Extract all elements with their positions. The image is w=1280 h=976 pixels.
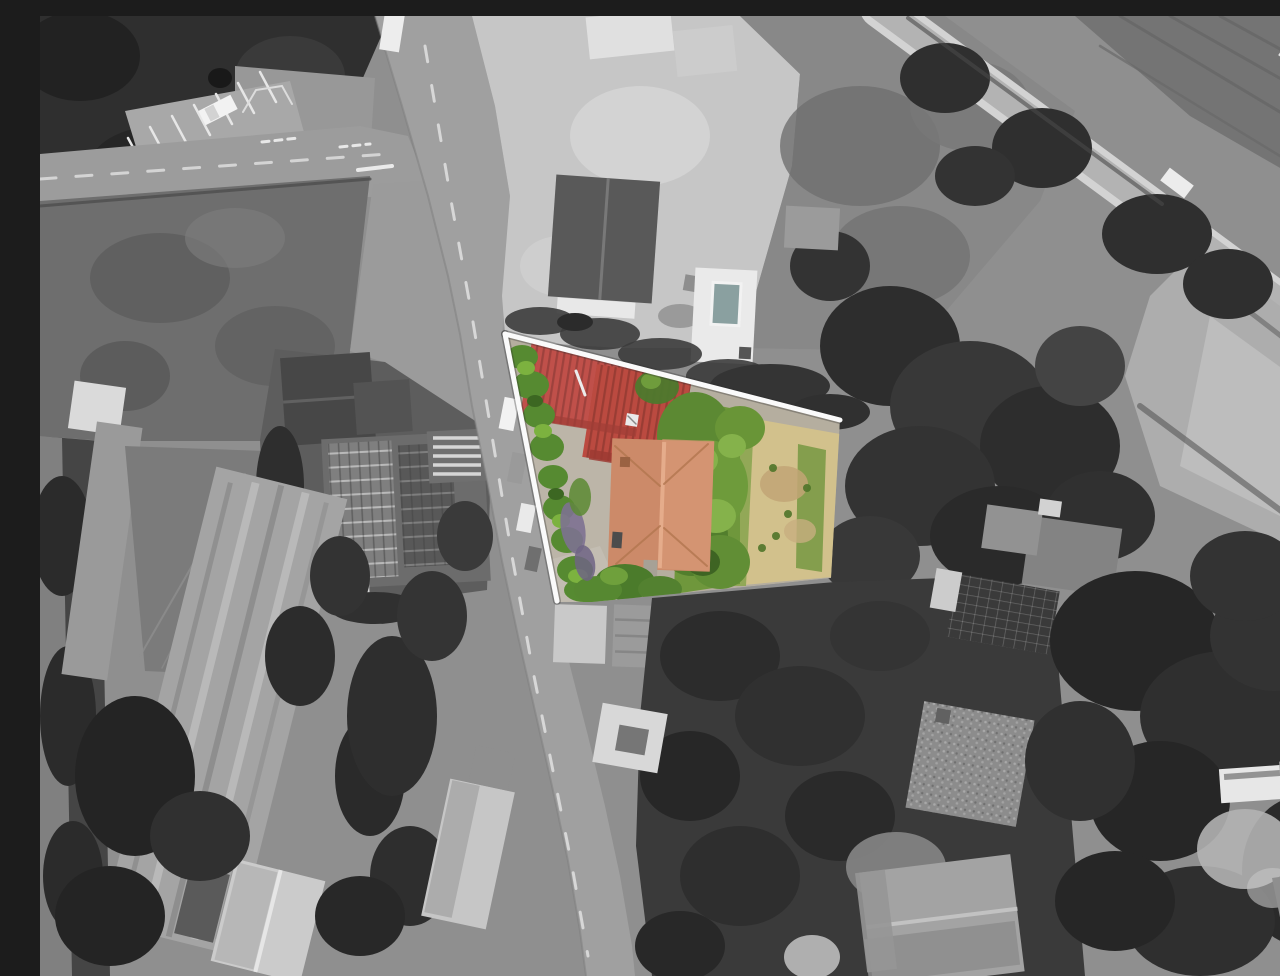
yard-light-patch — [570, 86, 710, 186]
rubble-strip — [557, 313, 593, 331]
tree-green-highlight — [718, 434, 746, 458]
dirt-patch — [760, 466, 808, 502]
forest-right — [1025, 701, 1135, 821]
tree-canopy — [1183, 249, 1273, 319]
tree-canopy — [347, 636, 437, 796]
rooftop-unit — [739, 347, 752, 360]
tree-canopy — [265, 606, 335, 706]
tree-canopy — [830, 601, 930, 671]
tree-canopy — [55, 866, 165, 966]
grass-strip — [796, 444, 826, 572]
hedge-shadow — [527, 395, 543, 407]
yard-object — [611, 532, 622, 549]
roof-slat — [433, 463, 481, 467]
forest-right — [1055, 851, 1175, 951]
field-shrub — [772, 532, 780, 540]
white-building-south — [553, 604, 607, 664]
building-extension — [353, 379, 412, 435]
hedge-highlight — [517, 361, 535, 375]
field-shrub — [803, 484, 811, 492]
bush — [208, 68, 232, 88]
hedge-highlight — [534, 424, 552, 438]
tree-canopy — [437, 501, 493, 571]
orange-roof-face — [658, 439, 715, 571]
aerial-photo-canvas — [40, 16, 1280, 976]
tree-canopy — [150, 791, 250, 881]
house-roof — [981, 504, 1043, 555]
white-van — [1219, 765, 1280, 803]
tree-canopy — [310, 536, 370, 616]
dirt-patch — [784, 519, 816, 543]
tree-canopy — [900, 43, 990, 113]
field-mottle — [185, 208, 285, 268]
roof-slat — [433, 472, 481, 476]
outbuilding — [468, 745, 515, 790]
hedge-highlight — [600, 567, 628, 585]
hedge-shadow — [548, 488, 564, 500]
tree-canopy — [735, 666, 865, 766]
tree-canopy — [397, 571, 467, 661]
swimming-pool — [711, 282, 741, 325]
courtyard-dark — [615, 725, 649, 756]
tree-canopy — [315, 876, 405, 956]
shed-roof — [784, 206, 840, 251]
white-roof — [673, 25, 737, 77]
roof-speckle — [905, 701, 1034, 827]
field-shrub — [758, 544, 766, 552]
hedge — [538, 465, 568, 489]
tree-canopy — [680, 826, 800, 926]
roof-slat — [433, 454, 481, 458]
vegetation-mass — [1035, 326, 1125, 406]
roof-slat — [433, 445, 481, 449]
roof-slat — [433, 436, 481, 440]
field-shrub — [784, 510, 792, 518]
field-shrub — [769, 464, 777, 472]
aerial-photo — [40, 16, 1280, 976]
green-shrub — [569, 478, 591, 516]
chimney — [935, 708, 951, 724]
chimney — [620, 457, 630, 467]
white-structure — [1038, 499, 1062, 518]
tree-canopy — [935, 146, 1015, 206]
